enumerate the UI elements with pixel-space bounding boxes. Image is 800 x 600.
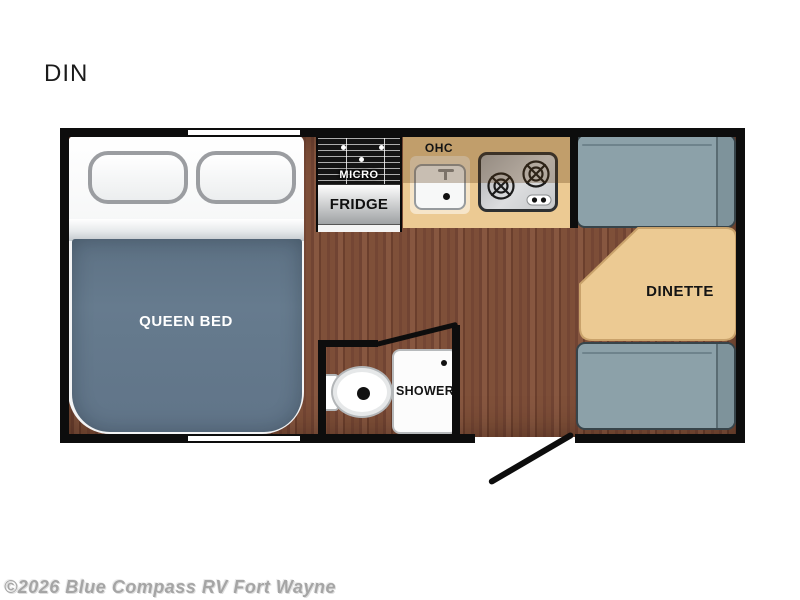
dinette-label: DINETTE	[620, 283, 740, 300]
shower-label: SHOWER	[394, 384, 456, 398]
fridge: FRIDGE	[318, 184, 400, 224]
pillow-left	[88, 151, 188, 204]
sink-drain-icon	[443, 193, 450, 200]
bed-sheet-fold	[68, 219, 304, 241]
fridge-label: FRIDGE	[330, 196, 388, 213]
microwave-dot	[379, 145, 384, 150]
floorplan-title: DIN	[44, 60, 88, 88]
bench-backrest	[716, 344, 734, 428]
window-rear	[188, 434, 300, 443]
wall-bottom	[60, 434, 188, 443]
floorplan-page: DIN QUEEN BED MICRO FRIDGE	[0, 0, 800, 600]
kitchen-counter: OHC	[403, 137, 570, 228]
bed-blanket	[72, 239, 302, 432]
overhead-cabinet: OHC	[403, 137, 570, 183]
microwave-dot	[359, 157, 364, 162]
dealer-watermark: ©2026 Blue Compass RV Fort Wayne	[4, 577, 336, 598]
bench-backrest	[716, 136, 734, 226]
dinette-bench-rear	[576, 342, 736, 430]
fridge-base	[318, 224, 400, 232]
wall-top	[60, 128, 188, 137]
toilet-drain-icon	[357, 387, 370, 400]
dinette-bench-front	[576, 134, 736, 228]
bathroom-wall-top	[318, 340, 378, 347]
rv-floorplan: QUEEN BED MICRO FRIDGE	[60, 128, 745, 443]
microwave-dot	[341, 145, 346, 150]
queen-bed-label: QUEEN BED	[68, 313, 304, 330]
microwave: MICRO	[318, 138, 400, 184]
microwave-label: MICRO	[318, 169, 400, 181]
queen-bed: QUEEN BED	[68, 135, 304, 434]
shower-drain-icon	[441, 360, 447, 366]
entry-door-swing	[488, 431, 575, 485]
toilet-icon	[331, 366, 393, 418]
bathroom-wall-left	[318, 340, 326, 434]
wall-top	[300, 128, 745, 137]
shower: SHOWER	[392, 349, 458, 434]
bench-seam	[582, 352, 712, 354]
window-front	[188, 128, 300, 137]
wall-right	[736, 128, 745, 443]
kitchen-dinette-wall	[570, 137, 578, 228]
wall-bottom	[300, 434, 475, 443]
bench-seam	[582, 144, 712, 146]
wall-left	[60, 128, 69, 443]
bathroom-wall-right	[452, 325, 460, 434]
micro-fridge-unit: MICRO FRIDGE	[316, 136, 402, 232]
wall-bottom	[575, 434, 745, 443]
pillow-right	[196, 151, 296, 204]
overhead-cabinet-label: OHC	[409, 141, 469, 155]
